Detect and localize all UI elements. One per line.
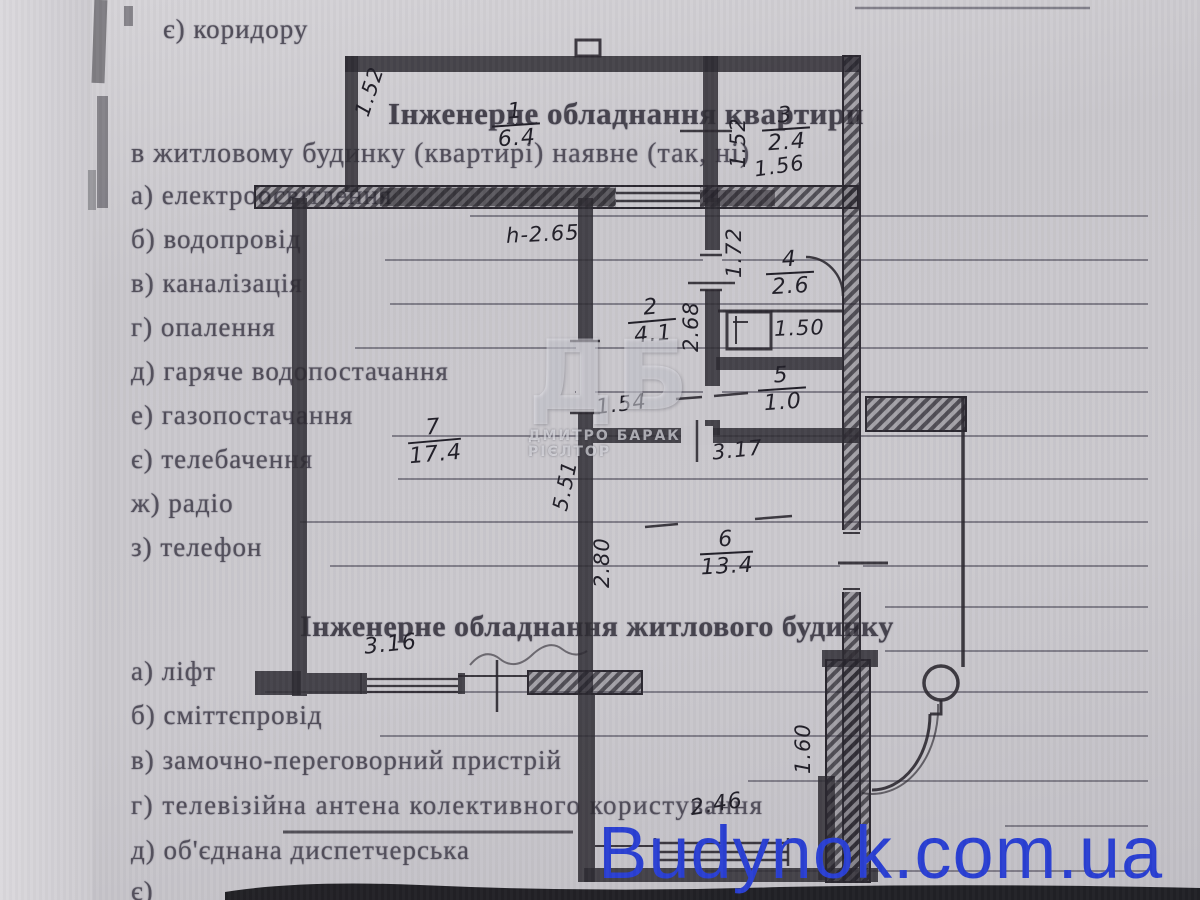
- walls: [255, 56, 966, 882]
- room-3-label: 3 2.4: [760, 102, 811, 155]
- scanned-form-page: є) коридору Інженерне обладнання квартир…: [0, 0, 1200, 900]
- room-5-label: 5 1.0: [756, 362, 807, 415]
- room-4-label: 4 2.6: [765, 247, 816, 300]
- dim-1-50: 1.50: [774, 315, 826, 341]
- dim-1-72: 1.72: [722, 227, 746, 278]
- site-watermark: Budynok.com.ua: [598, 810, 1163, 895]
- ceiling-height: h-2.65: [505, 220, 580, 248]
- floor-plan-drawing: [0, 0, 1200, 900]
- dim-2-68: 2.68: [679, 301, 703, 352]
- room-7-label: 7 17.4: [406, 414, 463, 469]
- dim-2-80: 2.80: [590, 537, 614, 588]
- room-1-label: 1 6.4: [490, 98, 541, 151]
- scan-artifacts: [88, 0, 1200, 900]
- room-6-label: 6 13.4: [699, 527, 755, 580]
- dim-1-52-room3: 1.52: [726, 117, 750, 168]
- room-2-label: 2 4.1: [626, 294, 678, 348]
- dim-1-60: 1.60: [791, 723, 815, 774]
